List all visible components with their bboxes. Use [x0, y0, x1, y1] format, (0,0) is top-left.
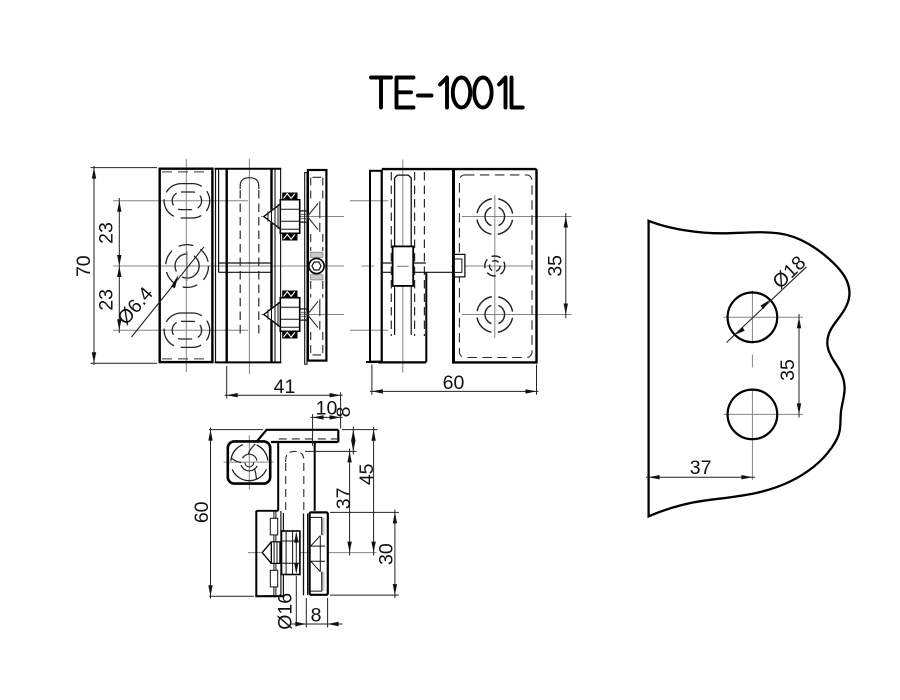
svg-text:30: 30	[375, 543, 397, 565]
svg-text:23: 23	[95, 289, 117, 311]
svg-text:41: 41	[274, 376, 296, 398]
svg-text:8: 8	[333, 406, 355, 417]
svg-text:8: 8	[311, 605, 322, 627]
svg-text:35: 35	[545, 255, 567, 277]
svg-text:35: 35	[777, 359, 799, 381]
svg-text:60: 60	[443, 372, 465, 394]
svg-text:37: 37	[690, 457, 712, 479]
svg-text:37: 37	[333, 488, 355, 510]
svg-text:Ø18: Ø18	[768, 252, 810, 293]
svg-text:70: 70	[73, 255, 95, 277]
svg-text:23: 23	[95, 222, 117, 244]
svg-text:60: 60	[191, 501, 213, 523]
svg-text:45: 45	[356, 463, 378, 485]
